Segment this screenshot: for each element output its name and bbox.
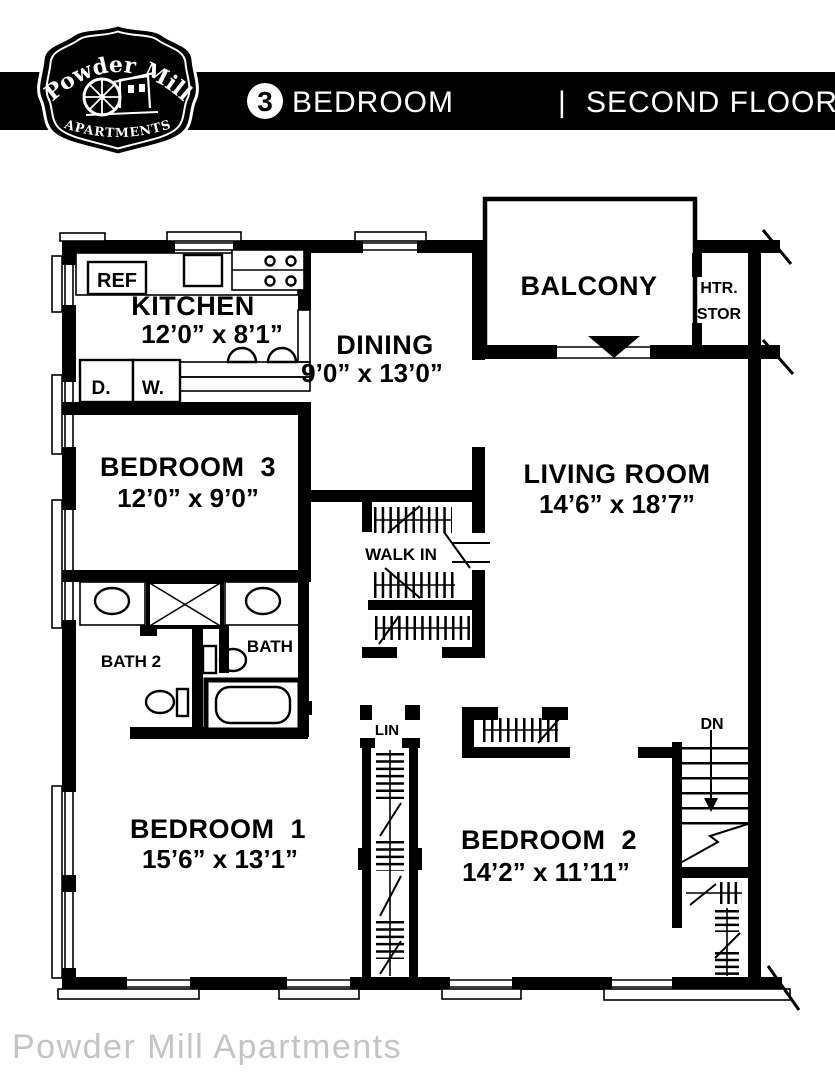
dining-dims: 9’0” x 13’0” — [301, 358, 443, 388]
toilet-icon — [146, 689, 188, 716]
bathtub-icon — [206, 680, 300, 730]
stairs-down-label: DN — [700, 716, 723, 733]
walk-in-label: WALK IN — [365, 545, 437, 564]
kitchen-label: KITCHEN — [131, 291, 255, 321]
sink-icon — [95, 588, 129, 614]
shower-icon — [148, 582, 222, 627]
kitchen-sink-icon — [184, 255, 222, 286]
linen-closet-shelves — [380, 750, 401, 976]
bath1-label: BATH 1 — [247, 637, 307, 656]
stor-label: STOR — [697, 306, 742, 323]
title-separator: | — [558, 86, 567, 119]
htr-label: HTR. — [700, 280, 737, 297]
title-left: BEDROOM — [292, 86, 454, 119]
kitchen-dims: 12’0” x 8’1” — [141, 319, 283, 349]
double-sink-icon — [228, 348, 256, 362]
sink-icon — [246, 588, 280, 614]
bedroom2-closet-rod — [483, 718, 560, 743]
stove-icon — [232, 250, 304, 290]
bedroom1-label: BEDROOM 1 — [130, 814, 306, 844]
understairs-closet-rods — [686, 884, 742, 976]
washer-label: W. — [142, 378, 164, 399]
peninsula-counter — [180, 362, 310, 377]
title-right: SECOND FLOOR PLAN — [586, 86, 835, 119]
powder-mill-logo-badge: Powder Mill APARTMENTS — [39, 25, 198, 155]
balcony-label: BALCONY — [521, 271, 658, 301]
refrigerator-label: REF — [97, 270, 137, 292]
unit-number: 3 — [257, 86, 273, 117]
floor-plan: REF D. W. — [52, 199, 799, 1010]
stairs-icon — [682, 730, 748, 862]
bedroom3-dims: 12’0” x 9’0” — [117, 483, 259, 513]
linen-label: LIN — [375, 722, 399, 739]
dining-label: DINING — [336, 330, 434, 360]
bedroom3-label: BEDROOM 3 — [100, 452, 276, 482]
floor-plan-page: 3 BEDROOM | SECOND FLOOR PLAN Powder Mil… — [0, 0, 835, 1080]
bedroom1-dims: 15’6” x 13’1” — [142, 844, 298, 874]
living-room-dims: 14’6” x 18’7” — [539, 489, 695, 519]
header: 3 BEDROOM | SECOND FLOOR PLAN Powder Mil… — [0, 25, 835, 155]
dryer-label: D. — [92, 378, 111, 399]
bedroom2-label: BEDROOM 2 — [461, 825, 637, 855]
wall-break-marks — [763, 230, 799, 1010]
bath2-label: BATH 2 — [101, 652, 161, 671]
living-room-label: LIVING ROOM — [524, 459, 711, 489]
bedroom2-dims: 14’2” x 11’11” — [462, 857, 630, 887]
down-arrow-icon — [704, 730, 718, 812]
footer-watermark: Powder Mill Apartments — [12, 1028, 402, 1066]
